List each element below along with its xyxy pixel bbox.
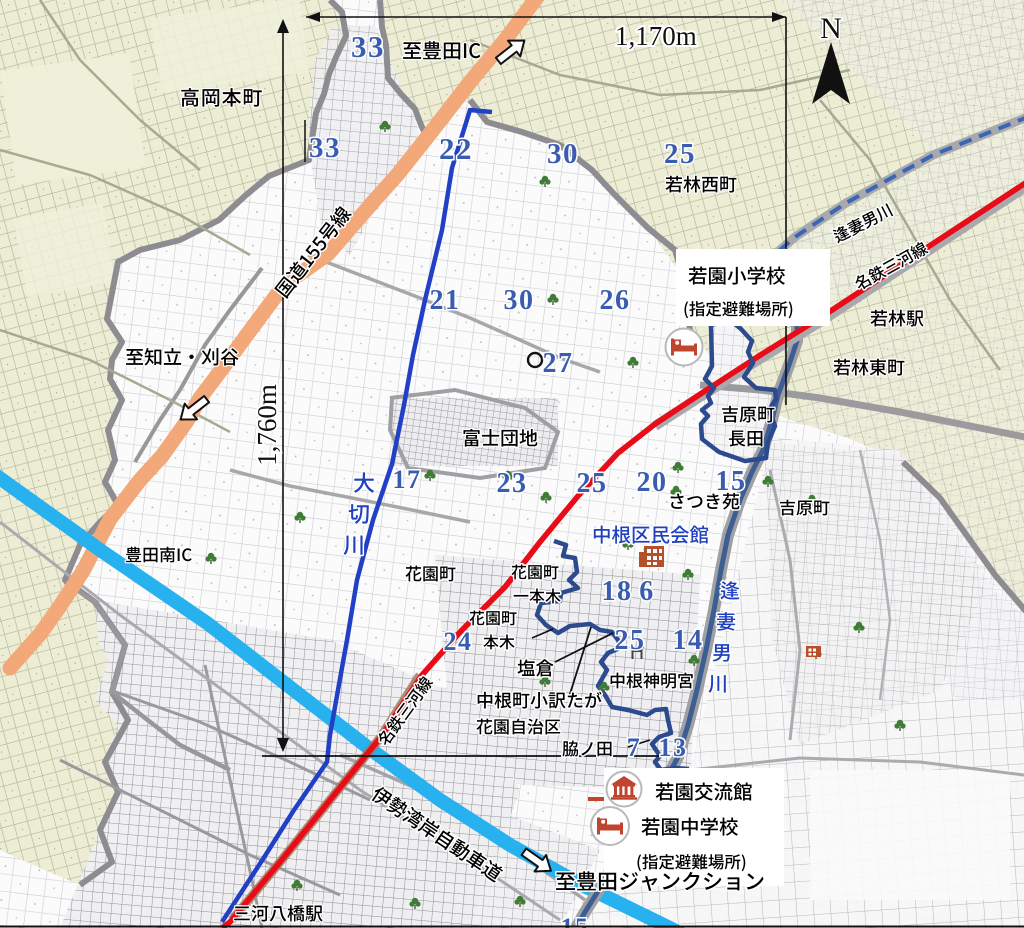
- svg-text:15: 15: [716, 466, 747, 497]
- svg-text:27: 27: [543, 348, 574, 379]
- svg-text:25: 25: [664, 138, 696, 170]
- svg-text:25: 25: [615, 625, 646, 656]
- svg-text:1,760m: 1,760m: [252, 384, 282, 466]
- svg-text:6: 6: [639, 576, 655, 607]
- svg-text:26: 26: [600, 285, 631, 316]
- svg-text:17: 17: [393, 465, 422, 494]
- svg-text:33: 33: [309, 132, 341, 164]
- svg-text:1,170m: 1,170m: [615, 21, 697, 51]
- svg-text:14: 14: [673, 625, 704, 656]
- svg-text:18: 18: [602, 576, 633, 607]
- svg-text:N: N: [820, 12, 842, 45]
- svg-text:30: 30: [547, 138, 579, 170]
- svg-text:20: 20: [637, 467, 668, 498]
- svg-text:25: 25: [577, 468, 608, 499]
- svg-text:13: 13: [659, 733, 688, 762]
- svg-text:7: 7: [627, 733, 642, 762]
- svg-text:22: 22: [439, 131, 473, 166]
- svg-text:33: 33: [351, 29, 385, 64]
- svg-text:24: 24: [444, 627, 473, 656]
- svg-text:23: 23: [497, 468, 528, 499]
- svg-text:21: 21: [430, 285, 461, 316]
- svg-text:30: 30: [504, 285, 535, 316]
